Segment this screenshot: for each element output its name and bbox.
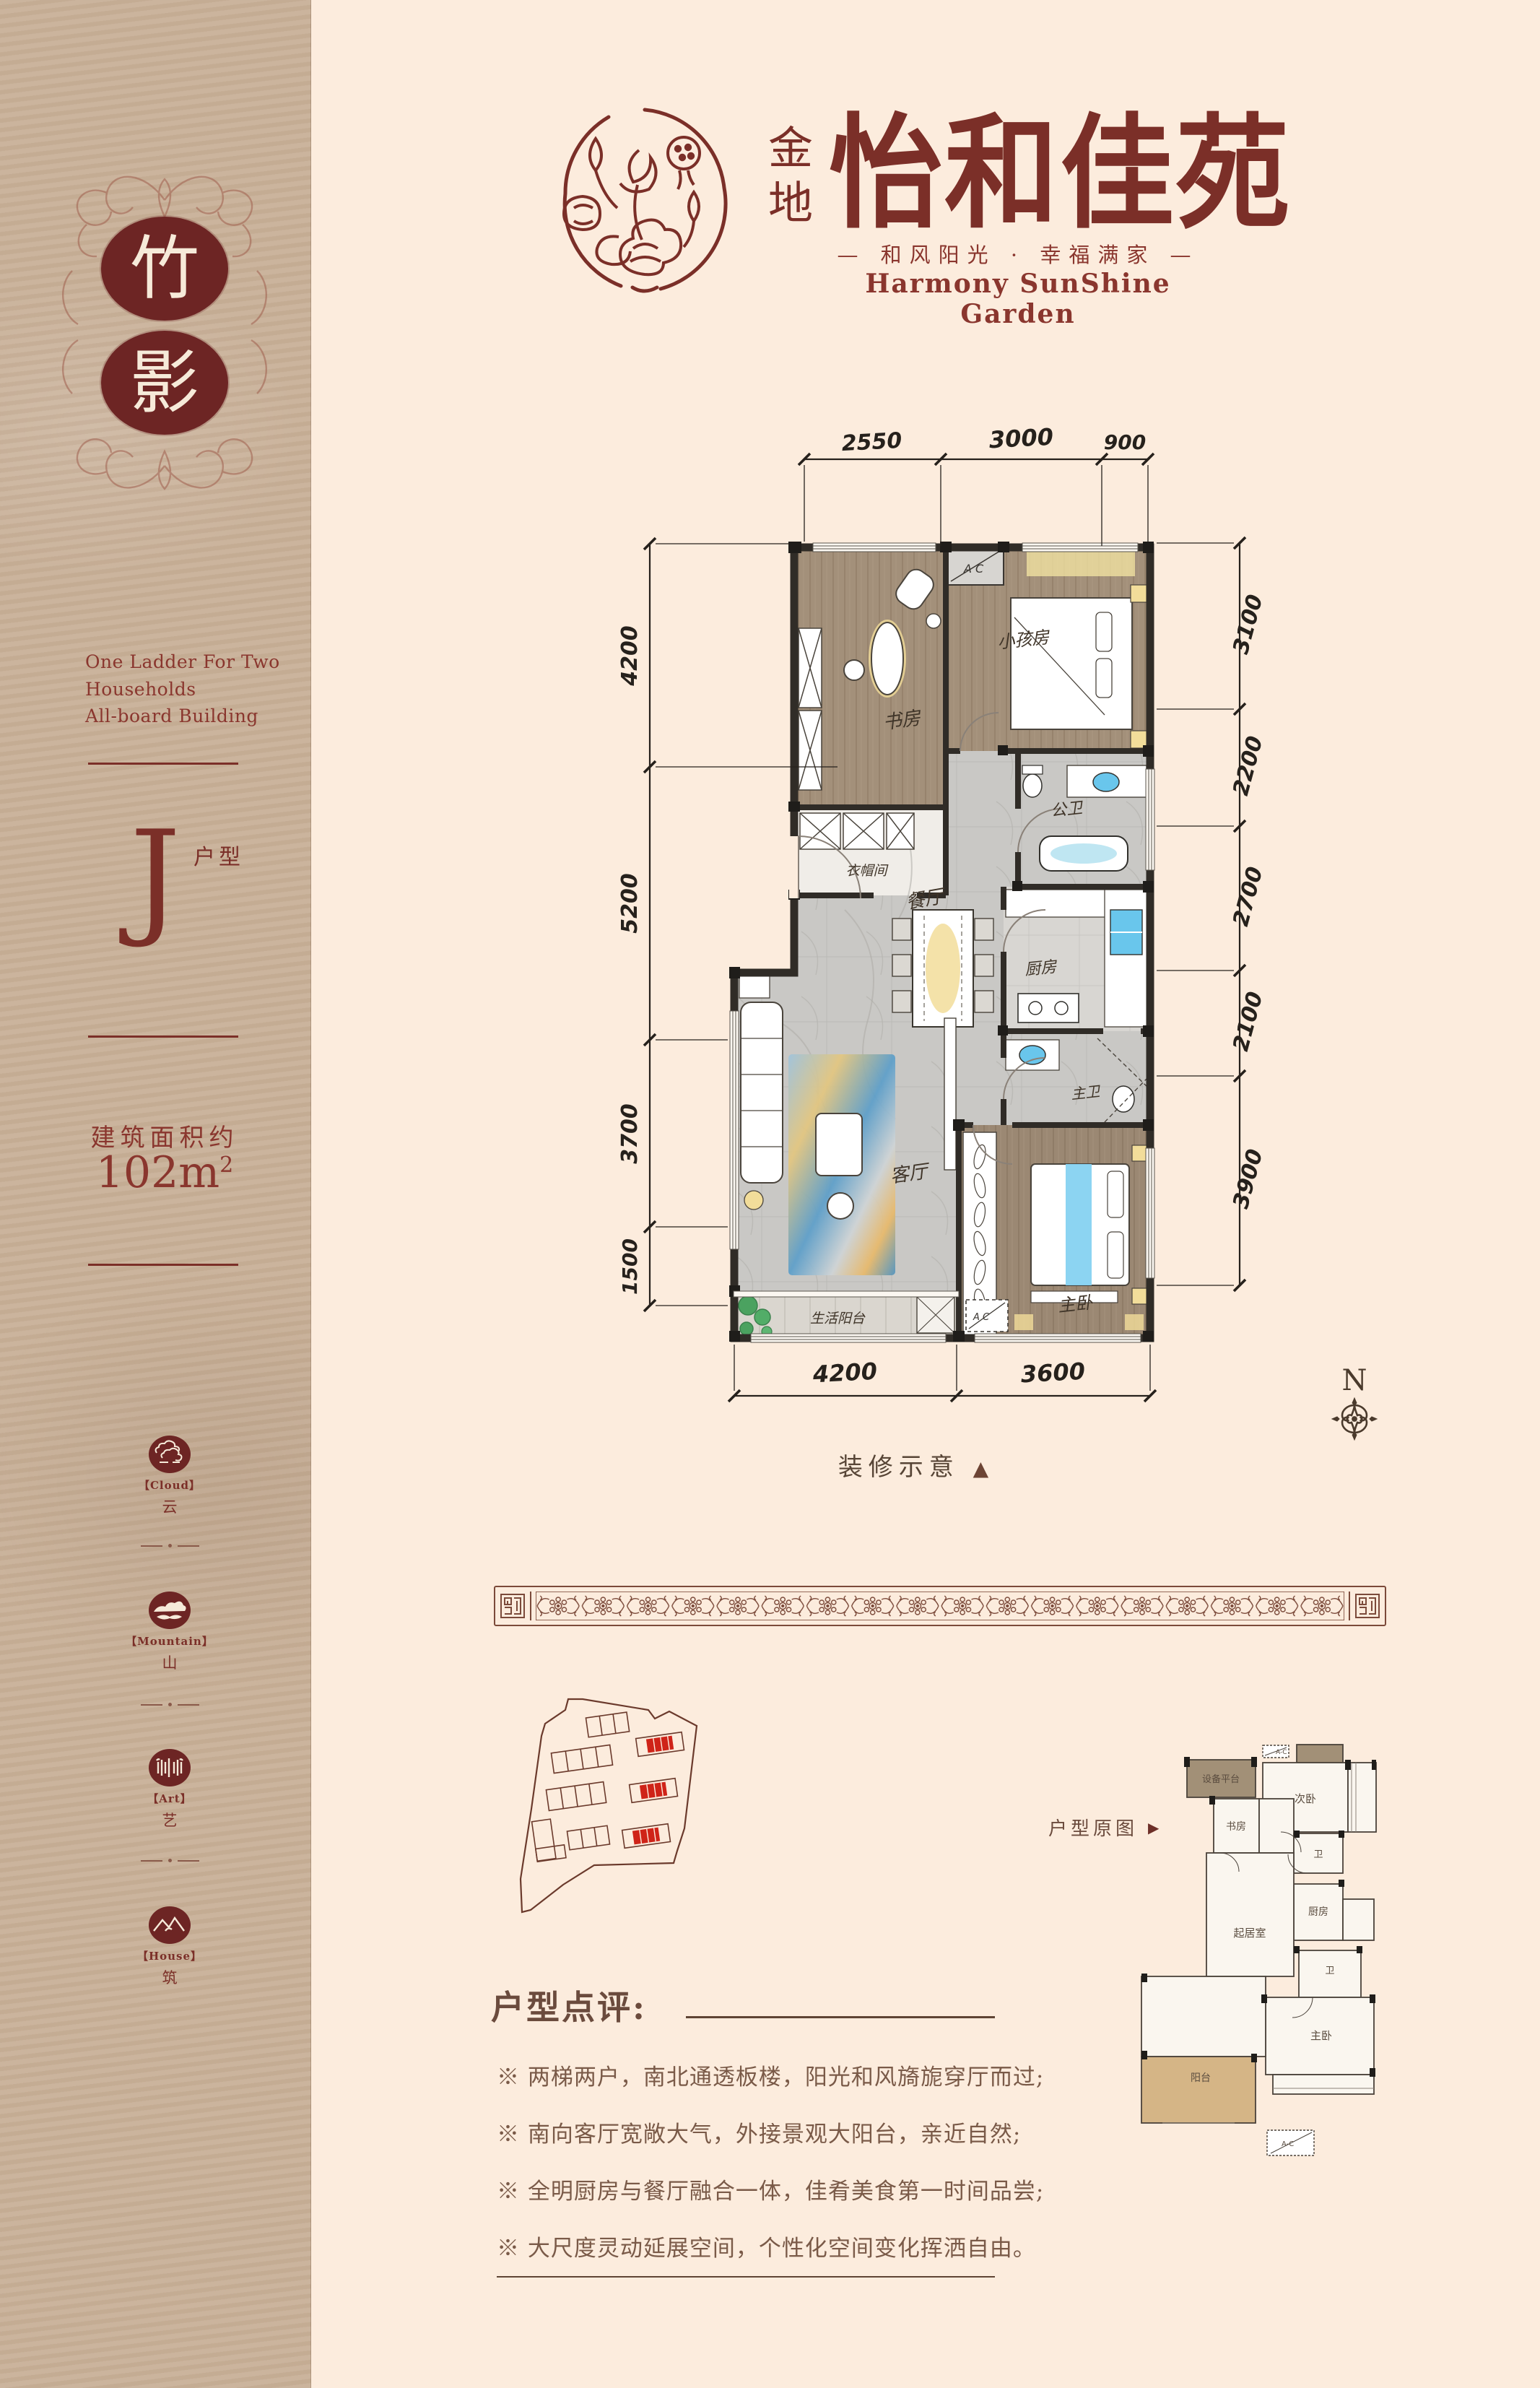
brand-prefix: 金地: [764, 124, 809, 247]
label-guest-bath: 公卫: [1050, 799, 1084, 821]
badge-cloud-en: 【Cloud】: [97, 1477, 242, 1493]
brand-name-en: Harmony SunShine Garden: [816, 269, 1220, 329]
dim-left-1: 4200: [617, 625, 643, 687]
badge-art-en: 【Art】: [97, 1791, 242, 1806]
review-title-underline: [686, 2016, 995, 2018]
brand-name: 怡和佳苑: [829, 113, 1291, 236]
site-buildings: [532, 1712, 630, 1862]
compass-rosette-icon: [1331, 1397, 1378, 1441]
badge-mountain: 【Mountain】 山: [97, 1590, 242, 1673]
orig-label-ac1: A-C: [1276, 1749, 1287, 1756]
tagline-line-1: One Ladder For Two: [85, 648, 287, 676]
badge-house-zh: 筑: [97, 1966, 242, 1988]
master-bath-sink: [1019, 1046, 1045, 1064]
orig-label-study: 书房: [1226, 1821, 1246, 1833]
dim-top-3: 900: [1104, 430, 1146, 454]
badge-mountain-zh: 山: [97, 1651, 242, 1673]
kids-nightstand-1: [1131, 585, 1148, 602]
orig-label-bath2: 卫: [1325, 1966, 1334, 1976]
tagline: One Ladder For Two Households All-board …: [85, 648, 287, 730]
label-cloak: 衣帽间: [845, 863, 889, 879]
unit-letter: J: [130, 815, 180, 941]
orig-label-master: 主卧: [1310, 2029, 1332, 2042]
sidebar: 竹 影 One Ladder For Two Households All-bo…: [0, 0, 311, 2388]
coffee-table: [816, 1113, 862, 1176]
cloak-closets: [800, 813, 914, 849]
ac-box-top: A C: [947, 547, 1004, 585]
label-master: 主卧: [1057, 1293, 1095, 1316]
badge-art: 【Art】 艺: [97, 1747, 242, 1831]
badge-divider-3: [112, 1859, 227, 1862]
plan-caption-text: 装修示意: [838, 1453, 960, 1482]
review-point-1: ※ 两梯两户，南北通透板楼，阳光和风旖旎穿厅而过;: [497, 2067, 1031, 2089]
band-divider-left: [530, 1592, 531, 1620]
series-circle-zhu: 竹: [101, 217, 228, 321]
unit-suffix: 户型: [193, 839, 244, 871]
badge-house-en: 【House】: [97, 1948, 242, 1963]
badge-divider-1: [112, 1544, 227, 1547]
band-divider-right: [1349, 1592, 1350, 1620]
corridor-floor: [946, 751, 1018, 895]
dim-right-5: 3900: [1228, 1147, 1268, 1212]
compass: N: [1327, 1366, 1382, 1444]
original-plan-label-text: 户型原图: [1048, 1814, 1138, 1841]
orig-balcony: [1141, 2057, 1256, 2123]
area-sup: 2: [219, 1152, 233, 1178]
orig-label-balcony: 阳台: [1191, 2072, 1211, 2084]
area-number: 102m: [96, 1147, 219, 1198]
lotus-emblem: [552, 107, 736, 300]
tagline-line-2: Households: [85, 676, 287, 703]
ac-box-bottom: A C: [966, 1300, 1008, 1332]
guest-bath-sink: [1093, 773, 1119, 791]
review-title: 户型点评:: [491, 1981, 647, 2029]
house-icon: [147, 1905, 193, 1945]
study-table: [871, 622, 903, 695]
orig-label-living: 起居室: [1233, 1927, 1266, 1940]
orig-label-equipment: 设备平台: [1202, 1773, 1240, 1785]
orig-label-bath1: 卫: [1313, 1849, 1323, 1860]
plan-caption: 装修示意 ▲: [791, 1447, 1036, 1482]
badge-art-zh: 艺: [97, 1809, 242, 1831]
kids-bed: [1011, 598, 1132, 729]
orig-living: [1206, 1853, 1294, 1976]
review-points: ※ 两梯两户，南北通透板楼，阳光和风旖旎穿厅而过; ※ 南向客厅宽敞大气，外接景…: [497, 2067, 1031, 2295]
study-chair: [844, 660, 864, 680]
dim-right-4: 2100: [1228, 989, 1268, 1054]
badge-cloud: 【Cloud】 云: [97, 1434, 242, 1517]
mountain-icon: [147, 1590, 193, 1631]
decorated-floorplan: A C A C: [599, 404, 1292, 1488]
living-sofa: [741, 1002, 783, 1183]
dim-left-3: 3700: [617, 1103, 643, 1164]
tv-console: [944, 1018, 956, 1170]
dim-bottom-1: 4200: [812, 1358, 878, 1389]
badge-cloud-zh: 云: [97, 1495, 242, 1517]
site-boundary: [521, 1699, 697, 1912]
site-plan: [498, 1646, 751, 1935]
series-char-zhu: 竹: [130, 234, 199, 303]
tagline-line-3: All-board Building: [85, 703, 287, 730]
dim-bottom-2: 3600: [1020, 1358, 1086, 1389]
review-point-3: ※ 全明厨房与餐厅融合一体，佳肴美食第一时间品尝;: [497, 2181, 1031, 2203]
living-stool: [827, 1193, 853, 1219]
dim-top-1: 2550: [841, 428, 902, 456]
dim-top-2: 3000: [988, 423, 1054, 454]
area-value: 102m2: [64, 1151, 266, 1194]
svg-text:A C: A C: [963, 562, 984, 576]
dim-right-2: 2200: [1228, 734, 1268, 799]
guest-bath-toilet: [1023, 774, 1042, 797]
seal-icon-right: [1354, 1593, 1380, 1619]
orig-label-kitchen: 厨房: [1308, 1906, 1328, 1918]
review-point-2: ※ 南向客厅宽敞大气，外接景观大阳台，亲近自然;: [497, 2124, 1031, 2146]
dim-left-2: 5200: [617, 873, 643, 934]
site-highlight-buildings: [622, 1732, 684, 1849]
orig-label-second: 次卧: [1295, 1792, 1316, 1805]
divider-3: [88, 1264, 238, 1266]
divider-1: [88, 763, 238, 765]
badge-divider-2: [112, 1703, 227, 1706]
review-bottom-rule: [497, 2276, 995, 2278]
svg-text:A C: A C: [973, 1312, 990, 1323]
label-master-bath: 主卫: [1070, 1082, 1102, 1103]
kitchen-stove: [1018, 994, 1079, 1023]
ornamental-band: [494, 1586, 1386, 1626]
divider-2: [88, 1035, 238, 1038]
review-point-4: ※ 大尺度灵动延展空间，个性化空间变化挥洒自由。: [497, 2238, 1031, 2260]
master-nightstand-2: [1132, 1288, 1148, 1304]
series-circle-ying: 影: [101, 331, 228, 435]
brochure-page: 竹 影 One Ladder For Two Households All-bo…: [0, 0, 1540, 2388]
band-floral-pattern: [536, 1592, 1344, 1620]
label-balcony: 生活阳台: [810, 1311, 866, 1327]
master-bath-toilet: [1113, 1086, 1134, 1112]
original-floorplan: 设备平台 次卧 书房 卫 厨房 起居室 卫 主卧 阳台 A-C A-C: [1134, 1733, 1393, 2174]
badge-mountain-en: 【Mountain】: [97, 1633, 242, 1649]
dim-right-3: 2700: [1228, 864, 1268, 929]
brand-slogan: — 和风阳光 · 幸福满家 —: [816, 238, 1220, 269]
seal-icon-left: [500, 1593, 526, 1619]
badge-house: 【House】 筑: [97, 1905, 242, 1988]
series-char-ying: 影: [130, 348, 199, 417]
orig-label-ac2: A-C: [1282, 2140, 1294, 2148]
plan-caption-marker: ▲: [973, 1456, 989, 1480]
cloud-icon: [147, 1434, 193, 1475]
label-kitchen: 厨房: [1024, 958, 1058, 980]
dim-left-4: 1500: [618, 1238, 642, 1295]
dim-right-1: 3100: [1228, 592, 1268, 657]
compass-n-label: N: [1327, 1366, 1382, 1395]
art-icon: [147, 1747, 193, 1788]
living-lamp: [744, 1191, 763, 1210]
